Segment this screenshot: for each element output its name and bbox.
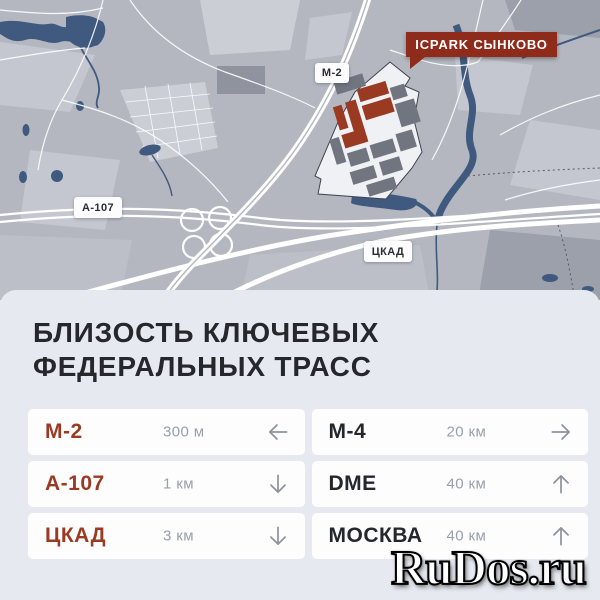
road-badge-ckad: ЦКАД [364, 241, 412, 262]
route-label: А-107 [45, 472, 105, 496]
direction-up-arrow-icon [548, 471, 574, 497]
route-label: М-4 [329, 420, 367, 444]
direction-left-arrow-icon [265, 419, 291, 445]
road-badge-m2: М-2 [315, 63, 349, 83]
watermark: RuDos.ru [391, 541, 586, 595]
project-label-badge: ICPARK СЫНКОВО [406, 32, 557, 57]
route-distance: 1 км [163, 476, 194, 493]
route-label: DME [329, 472, 377, 496]
route-card: DME40 км [312, 461, 589, 507]
location-map: М-2 А-107 ЦКАД ICPARK СЫНКОВО [0, 0, 600, 300]
route-label: ЦКАД [45, 524, 106, 548]
direction-right-arrow-icon [548, 419, 574, 445]
route-card: ЦКАД3 км [28, 513, 305, 559]
project-label: ICPARK СЫНКОВО [415, 37, 547, 52]
section-title-line1: БЛИЗОСТЬ КЛЮЧЕВЫХ [33, 316, 379, 350]
direction-down-arrow-icon [265, 471, 291, 497]
route-card: М-420 км [312, 409, 589, 455]
route-distance: 300 м [163, 424, 205, 441]
distance-cards: М-2300 мМ-420 кмА-1071 кмDME40 кмЦКАД3 к… [28, 409, 588, 559]
route-label: М-2 [45, 420, 83, 444]
badge-pointer [410, 57, 425, 69]
infographic: М-2 А-107 ЦКАД ICPARK СЫНКОВО БЛИЗОСТЬ К… [0, 0, 600, 600]
route-distance: 40 км [447, 476, 487, 493]
route-card: А-1071 км [28, 461, 305, 507]
route-distance: 20 км [447, 424, 487, 441]
road-badge-a107: А-107 [74, 197, 122, 218]
section-title-line2: ФЕДЕРАЛЬНЫХ ТРАСС [33, 350, 379, 384]
direction-down-arrow-icon [265, 523, 291, 549]
section-title: БЛИЗОСТЬ КЛЮЧЕВЫХ ФЕДЕРАЛЬНЫХ ТРАСС [33, 316, 379, 384]
route-distance: 3 км [163, 528, 194, 545]
route-card: М-2300 м [28, 409, 305, 455]
